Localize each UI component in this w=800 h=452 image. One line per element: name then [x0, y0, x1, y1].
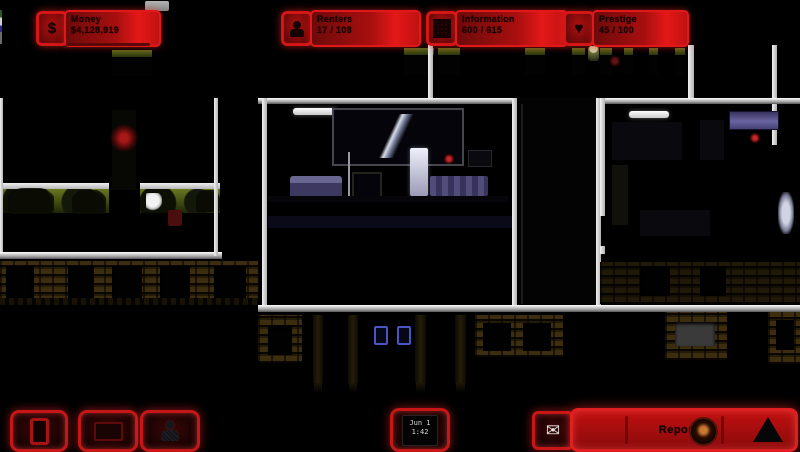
door-opening: [776, 320, 794, 350]
bright-object: [778, 192, 794, 234]
report-bar[interactable]: Report: [570, 408, 798, 452]
ground-line: [258, 305, 800, 312]
separator: [721, 416, 724, 444]
bush: [8, 188, 54, 214]
wall: [600, 98, 605, 216]
ceiling-lamp: [629, 111, 669, 118]
lower-band: [268, 216, 512, 228]
living-room[interactable]: [262, 98, 517, 312]
renters-label: Renters: [317, 14, 419, 25]
information-value: 600 / 615: [462, 25, 566, 36]
clock-time: 1:42: [403, 428, 437, 437]
bird-sprite[interactable]: [146, 193, 162, 211]
npc-marker: [610, 55, 620, 67]
basement-window: [6, 266, 34, 298]
furniture: [612, 165, 628, 225]
basement-window: [112, 266, 142, 298]
envelope-icon: ✉: [546, 422, 560, 439]
wall-fragment: [600, 246, 605, 254]
stair-shaft[interactable]: [517, 98, 601, 312]
wall-left-room: [214, 98, 218, 256]
ground-line-left: [0, 252, 222, 259]
upper-window: [675, 48, 685, 75]
renters-icon: [281, 11, 313, 46]
renters-stat[interactable]: Renters 17 / 108: [310, 10, 421, 47]
clock-dial-icon[interactable]: [689, 417, 718, 446]
prestige-label: Prestige: [599, 14, 687, 25]
heart-glyph: ♥: [575, 21, 584, 36]
wall: [262, 98, 267, 312]
drip: [416, 383, 425, 393]
build-button[interactable]: [10, 410, 68, 452]
purple-window: [729, 111, 779, 130]
upper-window: [624, 48, 633, 75]
door-opening: [483, 323, 511, 351]
porch-column: [415, 315, 426, 383]
person-icon: [290, 21, 304, 37]
dollar-glyph: $: [48, 21, 56, 36]
shaft-rail: [521, 104, 523, 304]
game-viewport: $ Money $4,128,919 Renters 17 / 108 Info…: [0, 0, 800, 452]
separator: [625, 416, 628, 444]
advance-triangle-icon[interactable]: [753, 417, 783, 442]
renters-value: 17 / 108: [317, 25, 419, 36]
npc-marker[interactable]: [444, 154, 454, 164]
information-icon: [426, 11, 458, 46]
drip: [456, 383, 465, 393]
prestige-stat[interactable]: Prestige 45 / 100: [592, 10, 689, 47]
basement-window: [640, 266, 670, 296]
upper-window: [112, 50, 152, 76]
brick-door-frame: [768, 312, 800, 364]
door-icon: [30, 418, 49, 445]
furniture: [700, 120, 724, 160]
upper-window: [438, 48, 460, 75]
person-icon: [160, 420, 180, 442]
prestige-icon: ♥: [563, 11, 595, 46]
wall-glyph: [374, 326, 388, 345]
porch-column: [313, 315, 323, 383]
building-icon: [433, 19, 451, 38]
wall-edge: [0, 98, 3, 256]
ceiling-lamp: [293, 108, 337, 115]
drip: [349, 383, 357, 393]
money-value: $4,128,919: [71, 25, 159, 36]
red-object: [168, 210, 182, 226]
yard-area[interactable]: [0, 98, 222, 260]
information-stat[interactable]: Information 600 / 615: [455, 10, 568, 47]
prestige-value: 45 / 100: [599, 25, 687, 36]
furniture: [612, 122, 682, 160]
door-opening: [268, 325, 292, 355]
brick-door-frame: [475, 315, 563, 357]
porch-column: [455, 315, 466, 383]
basement-window: [700, 266, 726, 296]
wall-glyph: [397, 326, 411, 345]
clock-button[interactable]: Jun 1 1:42: [390, 408, 450, 452]
door-opening: [523, 323, 551, 351]
brick-window-frame: [665, 312, 727, 360]
basement-window: [68, 266, 94, 298]
tv: [468, 150, 492, 167]
floor-shadow: [268, 196, 508, 202]
money-underline: [66, 43, 150, 46]
upper-window: [525, 48, 545, 75]
character-red-glow[interactable]: [110, 124, 138, 152]
npc-sprite[interactable]: [588, 46, 599, 61]
information-label: Information: [462, 14, 566, 25]
brick-door-frame: [258, 315, 302, 363]
porch-column: [348, 315, 358, 383]
furniture: [640, 210, 710, 236]
basement-window: [160, 266, 190, 298]
sofa: [290, 176, 342, 196]
upper-window: [572, 48, 585, 75]
npc-marker[interactable]: [750, 133, 760, 143]
tenants-button[interactable]: [140, 410, 200, 452]
clock-date: Jun 1: [403, 419, 437, 428]
window-opening: [675, 322, 715, 346]
inventory-button[interactable]: [78, 410, 138, 452]
screen-edge-artifact: [0, 10, 2, 44]
wall-post: [688, 45, 694, 103]
fridge: [410, 148, 428, 196]
cabinet: [430, 176, 488, 196]
box-icon: [94, 422, 123, 441]
clock-display: Jun 1 1:42: [402, 415, 438, 446]
mail-button[interactable]: ✉: [532, 411, 574, 450]
wall-post: [428, 45, 433, 103]
rubble-edge: [0, 298, 258, 305]
upper-window: [649, 48, 658, 75]
drip: [314, 383, 322, 393]
money-label: Money: [71, 14, 159, 25]
money-stat[interactable]: Money $4,128,919: [64, 10, 161, 47]
basement-window: [214, 266, 246, 298]
bush: [72, 190, 106, 214]
